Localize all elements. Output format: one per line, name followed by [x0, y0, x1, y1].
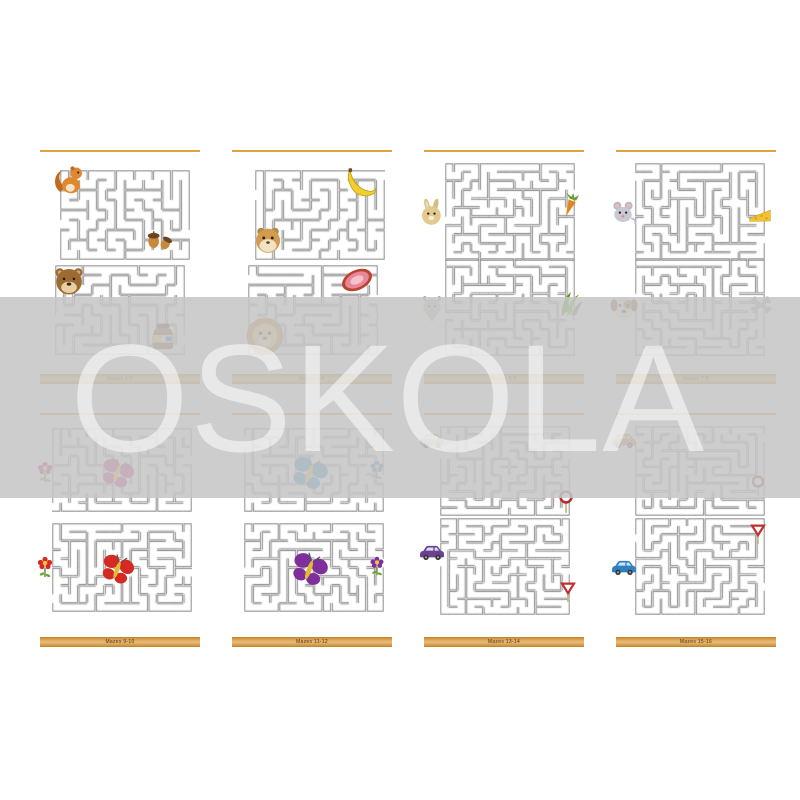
- butterfly-icon: [288, 549, 330, 591]
- banana-icon: [344, 164, 380, 200]
- mouse-icon: [608, 197, 638, 227]
- bear-icon: [52, 264, 86, 298]
- meat-icon: [338, 261, 376, 299]
- page-footer-label: Mazes 11-12: [296, 640, 328, 645]
- page-footer-label: Mazes 13-14: [488, 640, 520, 645]
- page-footer-bar: Mazes 13-14: [424, 637, 584, 647]
- squirrel-icon: [50, 162, 86, 198]
- cheese-icon: [747, 201, 773, 227]
- maze-canvas: [445, 163, 575, 261]
- sign-triangle-icon: [556, 581, 580, 605]
- car-icon: [608, 551, 640, 583]
- flower-icon: [366, 555, 388, 577]
- acorns-icon: [143, 222, 175, 254]
- hamster-icon: [251, 223, 285, 257]
- page-footer-bar: Mazes 9-10: [40, 637, 200, 647]
- butterfly-icon: [98, 551, 136, 589]
- maze-canvas: [635, 163, 765, 261]
- carrot-icon: [557, 191, 585, 219]
- sign-triangle-icon: [746, 523, 770, 547]
- rabbit-icon: [417, 198, 447, 228]
- maze-canvas: [440, 518, 570, 615]
- page-top-rule: [232, 150, 392, 152]
- worksheet-preview-sheet: Mazes 1-2Mazes 3-4Mazes 5-6Mazes 7-8Maze…: [0, 0, 800, 800]
- page-top-rule: [616, 150, 776, 152]
- flower-icon: [33, 555, 57, 579]
- watermark-text: OSKOLA: [70, 322, 705, 475]
- page-top-rule: [40, 150, 200, 152]
- page-footer-label: Mazes 15-16: [680, 640, 712, 645]
- page-footer-label: Mazes 9-10: [105, 640, 134, 645]
- page-top-rule: [424, 150, 584, 152]
- car-icon: [416, 536, 448, 568]
- page-footer-bar: Mazes 11-12: [232, 637, 392, 647]
- page-footer-bar: Mazes 15-16: [616, 637, 776, 647]
